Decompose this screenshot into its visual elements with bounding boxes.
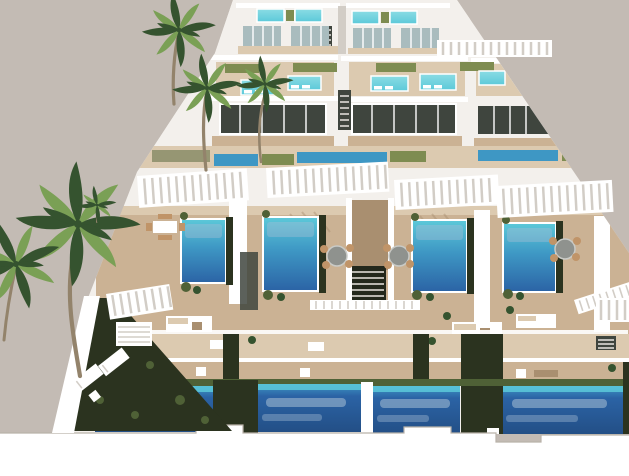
lap-pool [297,152,387,163]
private-pool-3 [411,213,474,301]
pergola-top-right [437,40,552,57]
lap-pool [478,150,558,161]
pergola-4 [496,180,614,218]
pergola-2 [266,162,389,198]
front-pool-2 [258,384,361,432]
row-b-glass-facades [220,104,550,134]
private-pool-2 [262,210,326,301]
garden-stairs [116,322,152,346]
pergola-3 [394,175,499,210]
private-pool-1 [180,212,233,294]
lap-pool [214,154,258,166]
architectural-render: Aerial 3D architectural rendering of a t… [0,0,629,476]
row-a-villas [215,0,470,56]
pergola-5 [596,298,629,322]
front-pool-4 [503,386,623,434]
pool-divider-wall [361,382,373,434]
